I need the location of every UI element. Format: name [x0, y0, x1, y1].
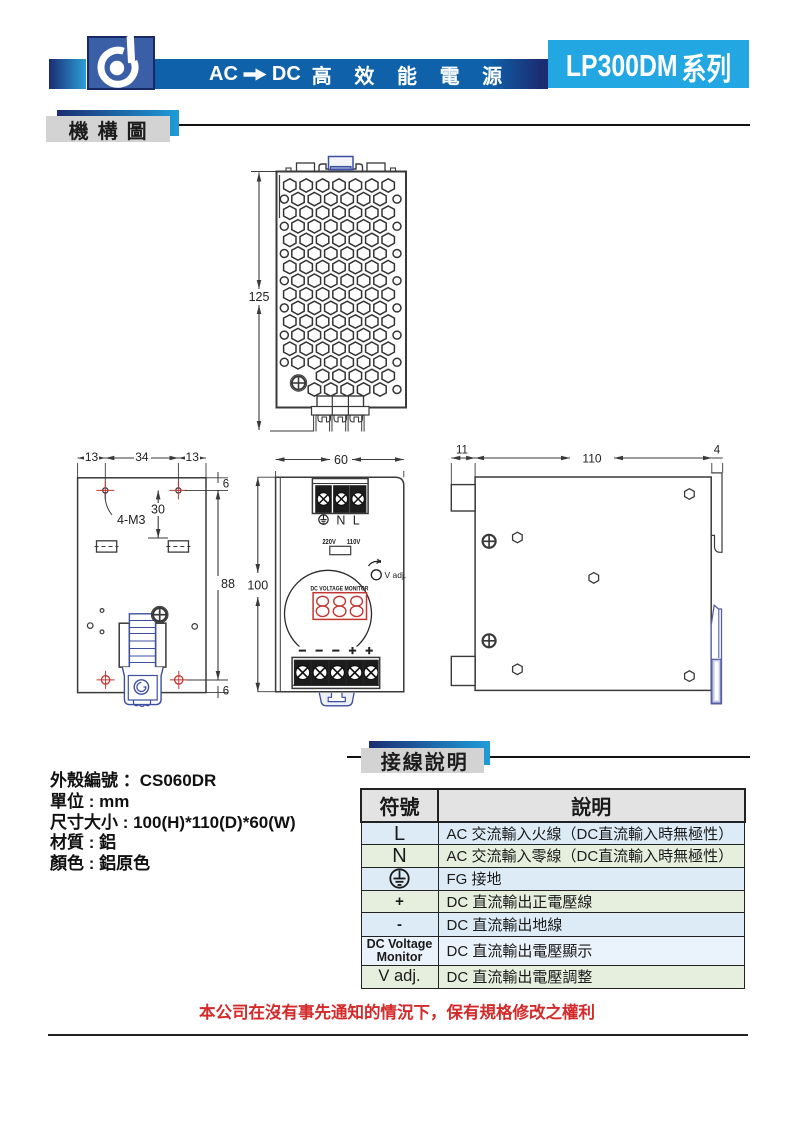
- svg-text:13: 13: [85, 450, 99, 464]
- svg-text:6: 6: [223, 479, 229, 491]
- svg-text:N: N: [336, 514, 345, 528]
- svg-text:L: L: [353, 514, 360, 528]
- svg-text:220V: 220V: [322, 539, 336, 546]
- svg-text:88: 88: [221, 577, 235, 591]
- svg-text:6: 6: [223, 686, 229, 698]
- svg-text:125: 125: [249, 290, 270, 304]
- svg-text:V adj.: V adj.: [385, 570, 407, 580]
- svg-text:110: 110: [582, 452, 601, 466]
- svg-text:60: 60: [334, 453, 348, 467]
- svg-text:4: 4: [714, 445, 721, 457]
- svg-text:110V: 110V: [347, 539, 361, 546]
- svg-text:4-M3: 4-M3: [117, 513, 146, 527]
- svg-text:100: 100: [247, 579, 268, 593]
- svg-text:13: 13: [186, 450, 200, 464]
- svg-text:30: 30: [151, 503, 165, 517]
- svg-text:DC VOLTAGE MONITOR: DC VOLTAGE MONITOR: [311, 586, 369, 593]
- svg-text:34: 34: [135, 450, 149, 464]
- svg-text:11: 11: [456, 445, 468, 457]
